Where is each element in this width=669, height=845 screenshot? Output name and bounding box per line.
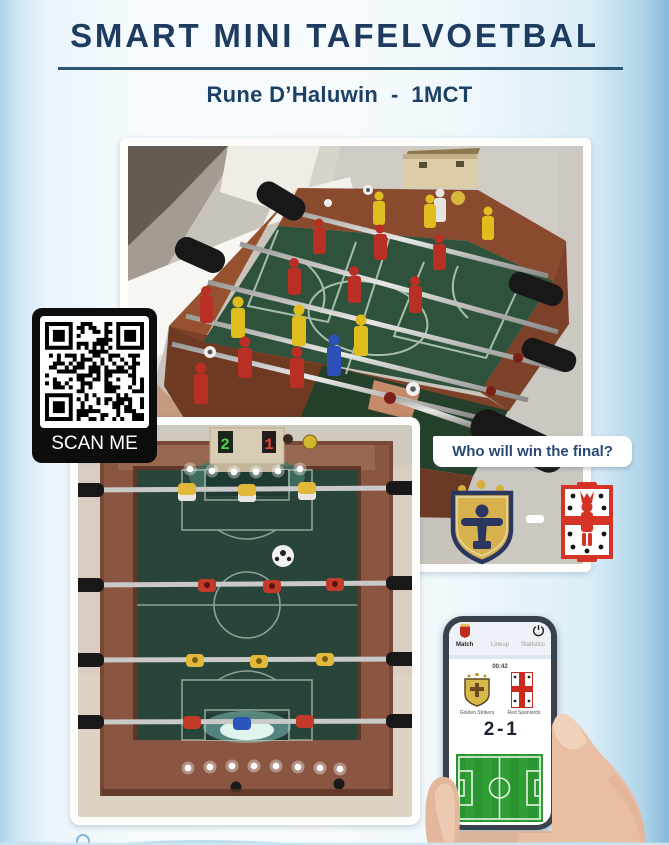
svg-text:1: 1 xyxy=(264,436,274,454)
svg-text:2: 2 xyxy=(220,436,230,454)
